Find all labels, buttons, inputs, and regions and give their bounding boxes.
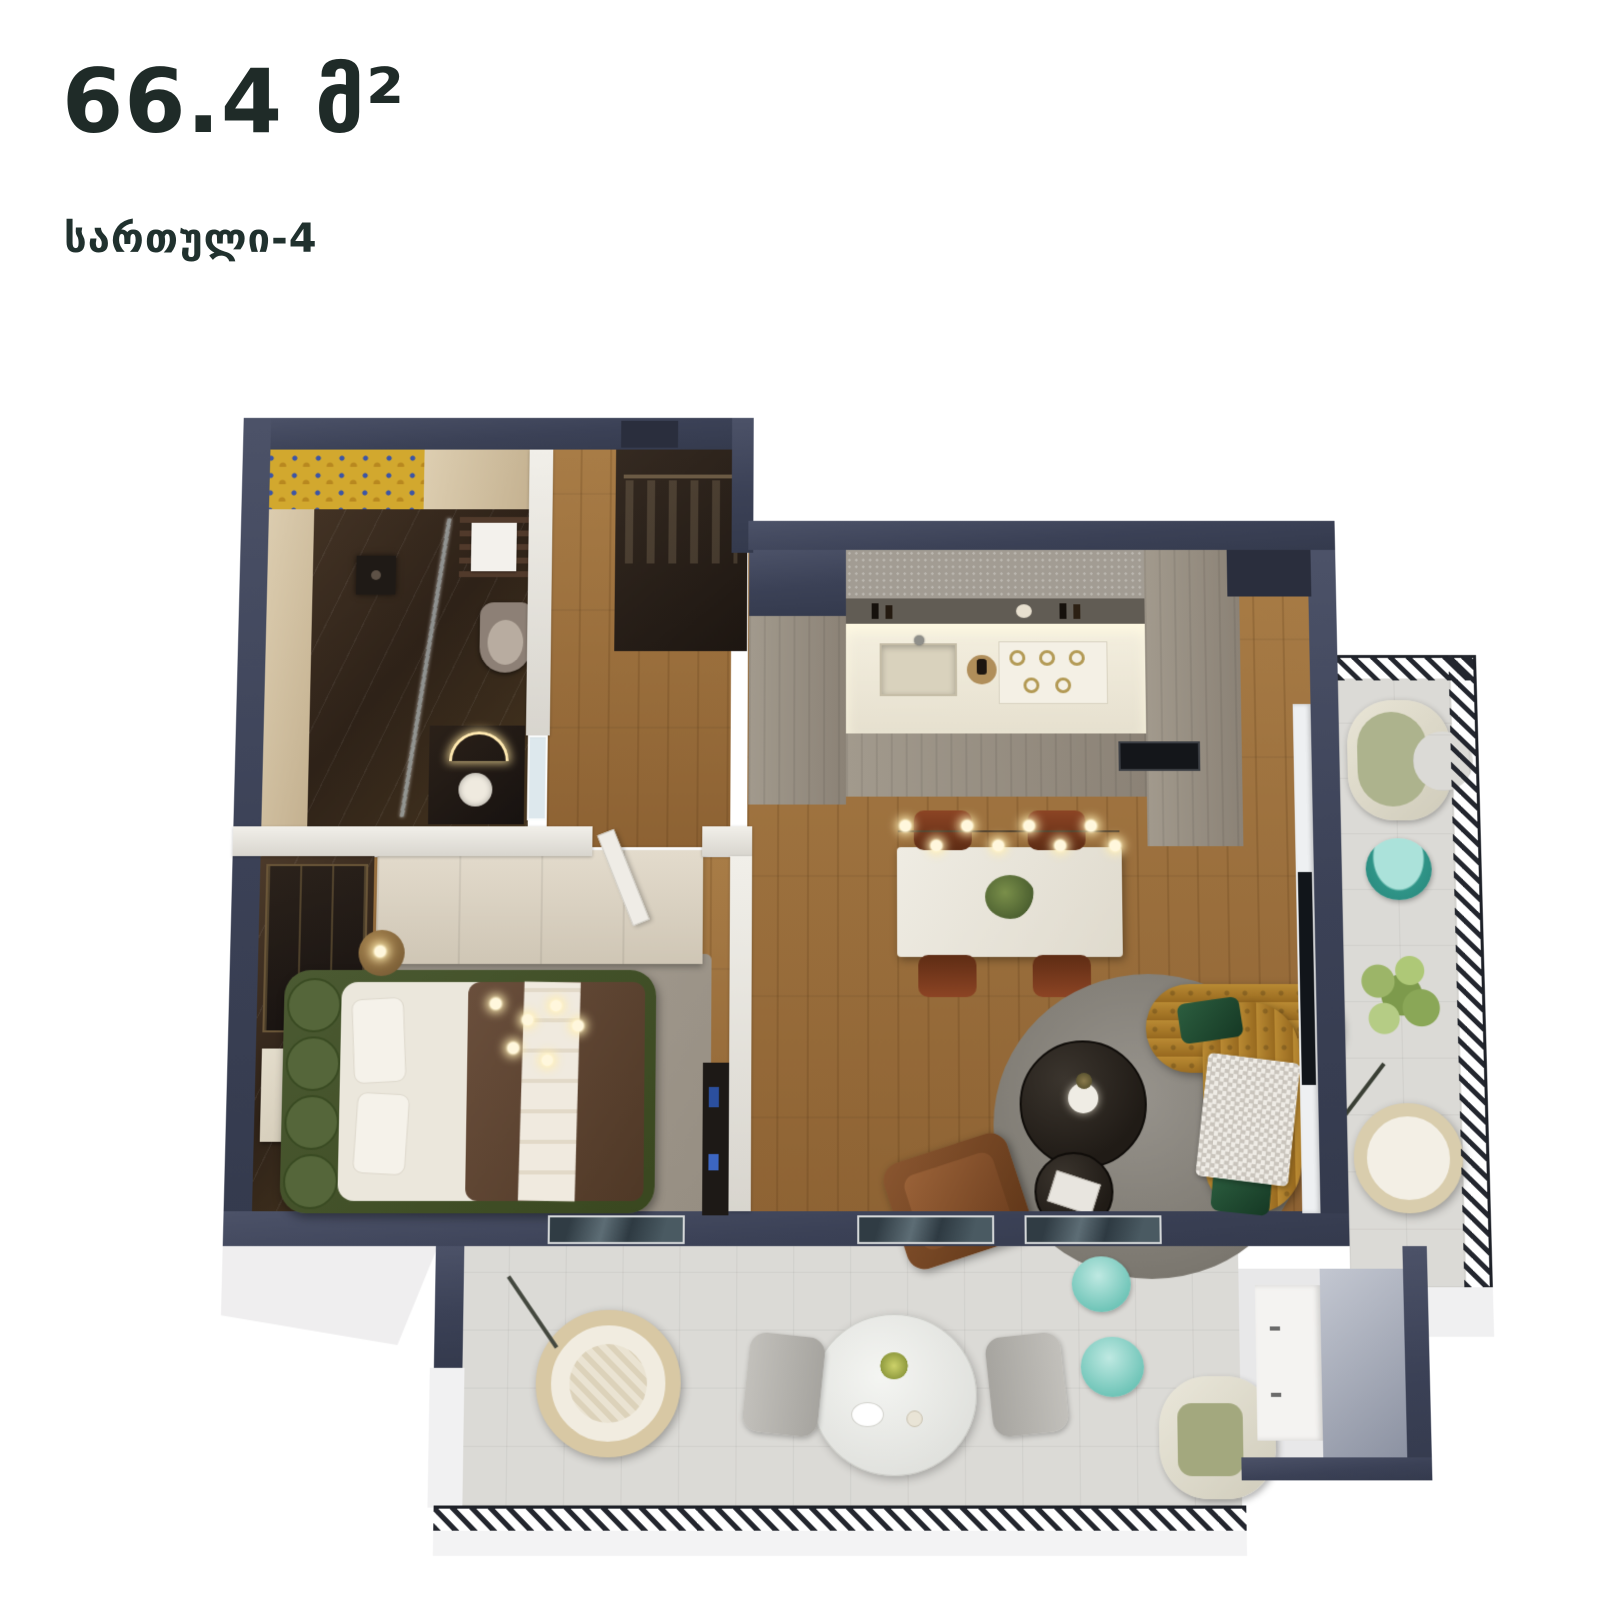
shelf-books-blue: [709, 1087, 719, 1107]
hanging-egg-chair: [535, 1310, 681, 1457]
sofa-pillow-green-1: [1176, 996, 1244, 1045]
cabinet-handle-1: [1270, 1326, 1280, 1330]
sliding-glass-door-living-2: [1025, 1215, 1162, 1244]
bathroom-glass-door: [527, 735, 548, 820]
table-plate: [851, 1402, 884, 1427]
sliding-glass-door-living-1: [857, 1215, 994, 1244]
balcony-chair-left: [741, 1331, 827, 1438]
bedroom-chandelier: [485, 992, 587, 1069]
teal-side-table: [1365, 838, 1432, 900]
wall-top-right-block: [748, 521, 1335, 550]
niche-wall-bottom: [1241, 1457, 1432, 1480]
bedroom-chandelier-bulb: [572, 1020, 583, 1031]
hall-open-closet: [614, 446, 748, 651]
bathroom-vanity: [428, 726, 525, 825]
kitchen-tall-unit-left: [748, 616, 846, 805]
balcony-dining-table: [811, 1314, 977, 1476]
bedroom-media-shelf: [702, 1063, 729, 1216]
sofa-throw-blanket: [1195, 1052, 1300, 1186]
oil-bottle: [977, 659, 987, 675]
shelf-plate: [1016, 604, 1032, 618]
magazine: [1047, 1170, 1101, 1216]
table-centerpiece-plant: [985, 875, 1035, 919]
vanity-mirror-led-arc: [449, 732, 509, 762]
bottom-balcony-left-outer: [427, 1368, 464, 1508]
chandelier-bulb: [993, 840, 1004, 851]
shower-head: [356, 556, 396, 595]
bed-pillow-1: [351, 997, 406, 1084]
closet-rail: [624, 475, 740, 479]
floor-subtitle: სართული-4: [64, 216, 318, 262]
shelf-books-blue-2: [708, 1154, 718, 1170]
bottom-balcony-railing: [433, 1506, 1246, 1531]
cutting-board: [967, 655, 997, 684]
bedroom-wardrobe: [375, 850, 703, 964]
towel-radiator: [459, 515, 529, 577]
bottom-balcony-left-pier: [434, 1246, 464, 1368]
sliding-glass-door-bedroom: [548, 1215, 685, 1244]
toilet-seat: [487, 620, 523, 665]
table-flowers: [880, 1352, 909, 1379]
wall-shaft-notch: [1227, 550, 1312, 597]
kitchen-shelf: [846, 598, 1145, 623]
niche-gray-panel: [1320, 1269, 1408, 1458]
bedroom-chandelier-bulb: [508, 1042, 519, 1053]
toilet: [479, 602, 531, 672]
burner-3: [1069, 650, 1085, 666]
vanity-sink: [458, 773, 492, 807]
vase-sprig: [1076, 1073, 1092, 1089]
bedroom-chandelier-bulb: [542, 1055, 553, 1066]
niche-cabinet-white: [1255, 1285, 1323, 1440]
chandelier-bulb: [1085, 820, 1096, 831]
balcony-chair-right: [984, 1331, 1070, 1438]
table-cup: [906, 1410, 922, 1427]
gas-hob: [998, 641, 1108, 704]
floor-plan: [174, 413, 1511, 1558]
area-title: 66.4 მ²: [62, 50, 405, 153]
bedroom-chandelier-bulb: [522, 1014, 533, 1025]
burner-2: [1039, 650, 1055, 666]
chandelier-bulb: [1055, 840, 1066, 851]
outer-face-below-bedroom: [220, 1246, 438, 1345]
balcony-sofa-sage: [1346, 700, 1452, 820]
armchair-sage-seat: [1177, 1403, 1244, 1476]
floorplan-page: 66.4 მ² სართული-4: [0, 0, 1600, 1600]
oven: [1118, 741, 1200, 771]
burner-1: [1009, 650, 1025, 666]
dining-chair-3: [918, 955, 976, 997]
shelf-bottle-4: [1073, 604, 1080, 619]
chandelier-bulb: [931, 840, 942, 851]
kitchen-tall-unit-upper: [749, 550, 846, 616]
entry-door-recess: [621, 421, 678, 448]
egg-chair-cushion: [569, 1344, 647, 1423]
kitchen-sink: [880, 643, 957, 696]
coffee-table-large: [1019, 1040, 1147, 1168]
chandelier-bulb: [900, 820, 911, 831]
dining-table: [897, 847, 1123, 957]
balcony-plant: [1345, 944, 1454, 1051]
faucet: [914, 635, 924, 645]
shower-nozzle: [371, 570, 381, 580]
teal-stool-1: [1072, 1256, 1132, 1312]
shelf-bottle-3: [1059, 603, 1066, 619]
mosaic-tile-wall: [263, 450, 425, 510]
closet-clothes: [625, 480, 738, 563]
teal-stool-2: [1080, 1337, 1144, 1397]
wall-bedroom-living: [728, 856, 752, 1211]
bedroom-chandelier-bulb: [490, 998, 501, 1009]
wall-bathroom-right: [526, 450, 553, 736]
nightstand-lamp: [375, 946, 386, 957]
burner-5: [1055, 678, 1071, 694]
chandelier-bulb: [1024, 820, 1035, 831]
chandelier-arm: [898, 830, 1120, 832]
wall-bath-bedroom-a: [233, 826, 593, 856]
chandelier-bulb: [962, 820, 973, 831]
bathroom-stone-wall-top: [424, 450, 533, 510]
kitchen-base-cabinets: [846, 733, 1147, 796]
shelf-bottle-2: [885, 605, 892, 619]
bed-pillow-2: [352, 1092, 410, 1176]
dining-chandelier: [898, 816, 1122, 852]
shelf-bottle-1: [872, 603, 879, 619]
bottom-balcony-outer-strip: [433, 1531, 1247, 1556]
wall-bottom: [223, 1211, 1350, 1246]
wall-bath-bedroom-b: [702, 826, 752, 856]
chandelier-bulb: [1110, 840, 1121, 851]
bedroom-chandelier-bulb: [550, 1000, 561, 1011]
towel: [471, 523, 517, 571]
burner-4: [1023, 678, 1039, 694]
cabinet-handle-2: [1271, 1393, 1281, 1397]
